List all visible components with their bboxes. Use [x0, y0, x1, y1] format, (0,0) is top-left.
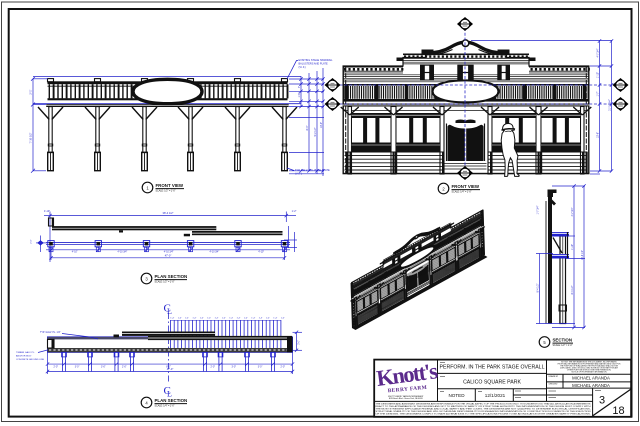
svg-text:PLAN SECTION: PLAN SECTION: [155, 398, 188, 403]
svg-text:3'-0": 3'-0": [299, 340, 301, 345]
svg-text:MICHAEL ARANDA: MICHAEL ARANDA: [572, 376, 610, 381]
svg-text:8'-4 1/2": 8'-4 1/2": [537, 283, 540, 292]
svg-text:4: 4: [145, 400, 148, 405]
svg-text:1'-10": 1'-10": [597, 72, 600, 78]
svg-text:1'-4": 1'-4": [193, 318, 197, 320]
svg-text:2'-0": 2'-0": [211, 366, 216, 368]
svg-text:1'-2": 1'-2": [292, 210, 297, 213]
svg-text:(V.I.F.): (V.I.F.): [299, 66, 306, 69]
svg-text:2: 2: [442, 186, 445, 191]
svg-text:1'-4": 1'-4": [266, 318, 270, 320]
svg-text:1'-7": 1'-7": [597, 91, 600, 96]
svg-text:1'-4": 1'-4": [273, 318, 277, 320]
svg-text:10'-0": 10'-0": [320, 122, 323, 128]
svg-text:OF THE DESIGNS. THE DESIGNERS: OF THE DESIGNS. THE DESIGNERS COMPLY TO …: [376, 412, 592, 415]
svg-text:1'-4": 1'-4": [281, 318, 285, 320]
svg-text:1'-4": 1'-4": [251, 318, 255, 320]
svg-text:38'-4 1/2": 38'-4 1/2": [163, 211, 174, 215]
svg-text:DRAWN BY: DRAWN BY: [549, 375, 559, 378]
svg-text:NOTED: NOTED: [448, 393, 465, 398]
svg-text:FRONT VIEW: FRONT VIEW: [156, 183, 184, 188]
svg-text:PERFORM. IN THE PARK STAGE OVE: PERFORM. IN THE PARK STAGE OVERALL: [440, 365, 545, 371]
svg-text:1'-4": 1'-4": [237, 318, 241, 320]
svg-text:8'-4": 8'-4": [306, 125, 309, 130]
svg-text:4'-10": 4'-10": [258, 252, 264, 254]
svg-text:16'-9 1/2": 16'-9 1/2": [581, 250, 584, 260]
svg-text:1: 1: [146, 185, 149, 190]
svg-text:2'-0": 2'-0": [281, 366, 286, 368]
svg-text:47'-0": 47'-0": [167, 367, 174, 371]
svg-text:7": 7": [298, 86, 301, 88]
svg-text:8'-4 1/2": 8'-4 1/2": [571, 285, 574, 294]
svg-text:1'-4": 1'-4": [244, 318, 248, 320]
svg-text:1'-7 3/4": 1'-7 3/4": [537, 205, 540, 214]
svg-text:10'-8": 10'-8": [597, 132, 600, 138]
svg-text:1'-4": 1'-4": [207, 318, 211, 320]
svg-text:1'-4": 1'-4": [222, 318, 226, 320]
svg-text:3'-0": 3'-0": [232, 366, 237, 368]
svg-text:1'-4": 1'-4": [185, 318, 189, 320]
svg-text:ANCHOR BOLT: ANCHOR BOLT: [16, 355, 32, 358]
svg-text:1'-4": 1'-4": [229, 318, 233, 320]
svg-text:CHECKED: CHECKED: [549, 384, 558, 386]
svg-text:CALICO SQUARE PARK: CALICO SQUARE PARK: [463, 379, 521, 385]
svg-text:1'-4": 1'-4": [200, 318, 204, 320]
svg-text:MICHAEL ARANDA: MICHAEL ARANDA: [572, 383, 610, 388]
svg-text:21'-10 3/4": 21'-10 3/4": [609, 99, 612, 111]
svg-text:3'-0": 3'-0": [75, 366, 80, 368]
svg-text:SECTION: SECTION: [553, 338, 573, 343]
svg-text:9'-2 1/2": 9'-2 1/2": [314, 127, 317, 136]
svg-text:1'-4": 1'-4": [170, 318, 174, 320]
svg-text:1'-6": 1'-6": [298, 92, 301, 97]
svg-text:2'-1": 2'-1": [29, 89, 33, 94]
svg-text:1'-4": 1'-4": [259, 318, 263, 320]
svg-text:(V.I.F.): (V.I.F.): [295, 173, 302, 176]
svg-text:4'-10": 4'-10": [72, 252, 78, 254]
svg-text:SCALE: 1/2" = 1'-0": SCALE: 1/2" = 1'-0": [155, 281, 175, 284]
svg-text:4'-10": 4'-10": [44, 210, 50, 213]
svg-text:4'-10 3/4": 4'-10 3/4": [118, 252, 128, 254]
svg-text:1'-4": 1'-4": [178, 318, 182, 320]
svg-text:CONCRETE GROUND LINE: CONCRETE GROUND LINE: [16, 359, 45, 361]
svg-text:PLAN SECTION: PLAN SECTION: [155, 274, 188, 279]
svg-text:1'-4": 1'-4": [215, 318, 219, 320]
svg-text:5: 5: [543, 340, 546, 345]
svg-text:2'-0": 2'-0": [54, 366, 59, 368]
svg-text:18: 18: [612, 405, 624, 417]
svg-text:SCALE: 1/4" = 1'-0": SCALE: 1/4" = 1'-0": [155, 405, 175, 408]
svg-text:7'-10 1/2": 7'-10 1/2": [29, 132, 33, 143]
svg-text:12/1/2021: 12/1/2021: [485, 393, 506, 398]
svg-text:4'-10 3/4": 4'-10 3/4": [164, 252, 174, 254]
svg-text:TIMBER GALV. PL.: TIMBER GALV. PL.: [16, 351, 35, 354]
svg-text:4'-7 3/4": 4'-7 3/4": [571, 207, 574, 216]
svg-text:4'-10 3/4": 4'-10 3/4": [209, 252, 219, 254]
svg-text:8039 Beach Blvd. - Buena Park,: 8039 Beach Blvd. - Buena Park, CA 90620: [389, 397, 423, 400]
svg-text:3: 3: [599, 395, 605, 407]
svg-text:1'-10": 1'-10": [571, 244, 574, 250]
svg-text:47'-0": 47'-0": [165, 253, 172, 257]
svg-text:SCALE: 1/2" = 1'-0": SCALE: 1/2" = 1'-0": [553, 344, 573, 347]
svg-text:2'-0": 2'-0": [122, 366, 127, 368]
svg-text:NOTICE OF PROPRIETARY INFORMAT: NOTICE OF PROPRIETARY INFORMATION: [572, 371, 608, 374]
svg-text:3: 3: [145, 276, 148, 281]
svg-text:SCALE: 1/4" = 1'-0": SCALE: 1/4" = 1'-0": [452, 191, 472, 194]
svg-text:L: L: [167, 307, 172, 316]
svg-text:TYP. GALV. PL. 1/4": TYP. GALV. PL. 1/4": [40, 331, 61, 334]
svg-text:SCALE: 1/2" = 1'-0": SCALE: 1/2" = 1'-0": [156, 190, 176, 193]
svg-text:4'-7 3/4": 4'-7 3/4": [597, 48, 600, 57]
svg-text:FRONT VIEW: FRONT VIEW: [452, 184, 480, 189]
svg-text:2'-0": 2'-0": [31, 239, 33, 244]
svg-text:3'-0": 3'-0": [101, 366, 106, 368]
svg-text:3'-0": 3'-0": [258, 366, 263, 368]
